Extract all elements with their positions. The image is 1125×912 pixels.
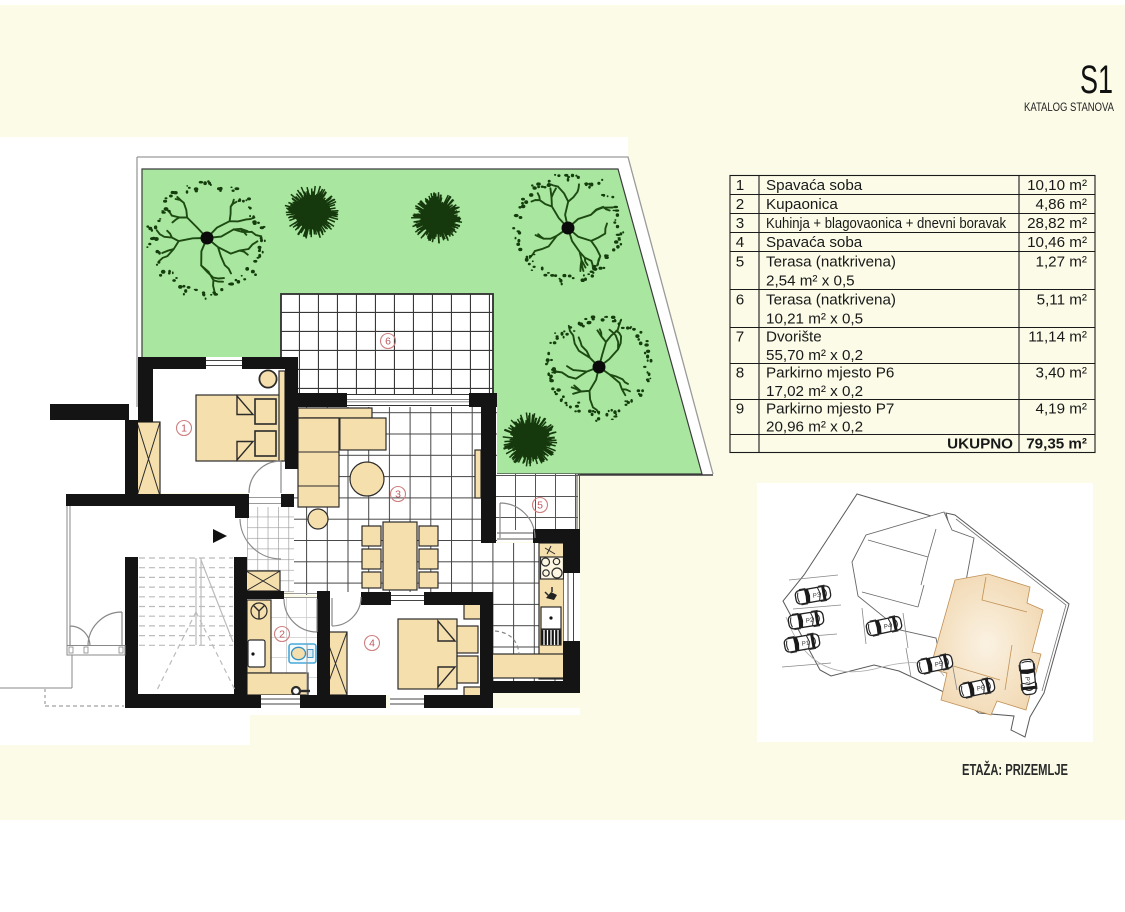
svg-text:2: 2 — [279, 629, 285, 641]
svg-text:Dvorište: Dvorište — [766, 329, 822, 346]
svg-text:7: 7 — [736, 329, 744, 346]
svg-text:5: 5 — [537, 500, 543, 512]
svg-text:Spavaća soba: Spavaća soba — [766, 234, 863, 251]
svg-text:4: 4 — [369, 638, 375, 650]
svg-text:2,54 m² x 0,5: 2,54 m² x 0,5 — [766, 273, 855, 290]
svg-text:11,14 m²: 11,14 m² — [1028, 329, 1087, 346]
svg-text:4,86 m²: 4,86 m² — [1036, 196, 1088, 213]
svg-text:10,10 m²: 10,10 m² — [1027, 177, 1087, 194]
svg-text:55,70 m² x 0,2: 55,70 m² x 0,2 — [766, 347, 863, 364]
svg-text:9: 9 — [736, 401, 744, 418]
svg-text:5: 5 — [736, 254, 744, 271]
svg-text:UKUPNO: UKUPNO — [947, 436, 1013, 453]
svg-text:2: 2 — [736, 196, 744, 213]
svg-text:6: 6 — [736, 292, 744, 309]
svg-text:4: 4 — [736, 234, 744, 251]
svg-text:Kupaonica: Kupaonica — [766, 196, 838, 213]
svg-text:3: 3 — [395, 489, 401, 501]
svg-text:20,96 m² x 0,2: 20,96 m² x 0,2 — [766, 419, 863, 436]
svg-text:8: 8 — [736, 365, 744, 382]
svg-text:17,02 m² x 0,2: 17,02 m² x 0,2 — [766, 383, 863, 400]
svg-text:4,19 m²: 4,19 m² — [1036, 401, 1088, 418]
svg-text:1: 1 — [736, 177, 744, 194]
svg-text:79,35 m²: 79,35 m² — [1026, 436, 1087, 453]
svg-text:3: 3 — [736, 215, 744, 232]
svg-text:10,46 m²: 10,46 m² — [1027, 234, 1087, 251]
svg-text:28,82 m²: 28,82 m² — [1027, 215, 1087, 232]
svg-text:10,21 m² x 0,5: 10,21 m² x 0,5 — [766, 311, 863, 328]
svg-text:Terasa (natkrivena): Terasa (natkrivena) — [766, 254, 896, 271]
svg-text:Spavaća soba: Spavaća soba — [766, 177, 863, 194]
svg-text:P7: P7 — [1023, 676, 1031, 685]
svg-text:KATALOG STANOVA: KATALOG STANOVA — [1024, 102, 1114, 114]
svg-text:Parkirno mjesto P7: Parkirno mjesto P7 — [766, 401, 894, 418]
svg-text:Terasa (natkrivena): Terasa (natkrivena) — [766, 292, 896, 309]
svg-text:5,11 m²: 5,11 m² — [1037, 292, 1087, 309]
svg-text:6: 6 — [385, 336, 391, 348]
svg-text:Kuhinja + blagovaonica + dnevn: Kuhinja + blagovaonica + dnevni boravak — [766, 215, 1006, 232]
svg-text:S1: S1 — [1080, 58, 1113, 102]
svg-text:3,40 m²: 3,40 m² — [1036, 365, 1088, 382]
svg-text:ETAŽA: PRIZEMLJE: ETAŽA: PRIZEMLJE — [962, 761, 1068, 779]
svg-text:1,27 m²: 1,27 m² — [1036, 254, 1088, 271]
svg-text:1: 1 — [181, 423, 187, 435]
svg-text:Parkirno mjesto P6: Parkirno mjesto P6 — [766, 365, 894, 382]
